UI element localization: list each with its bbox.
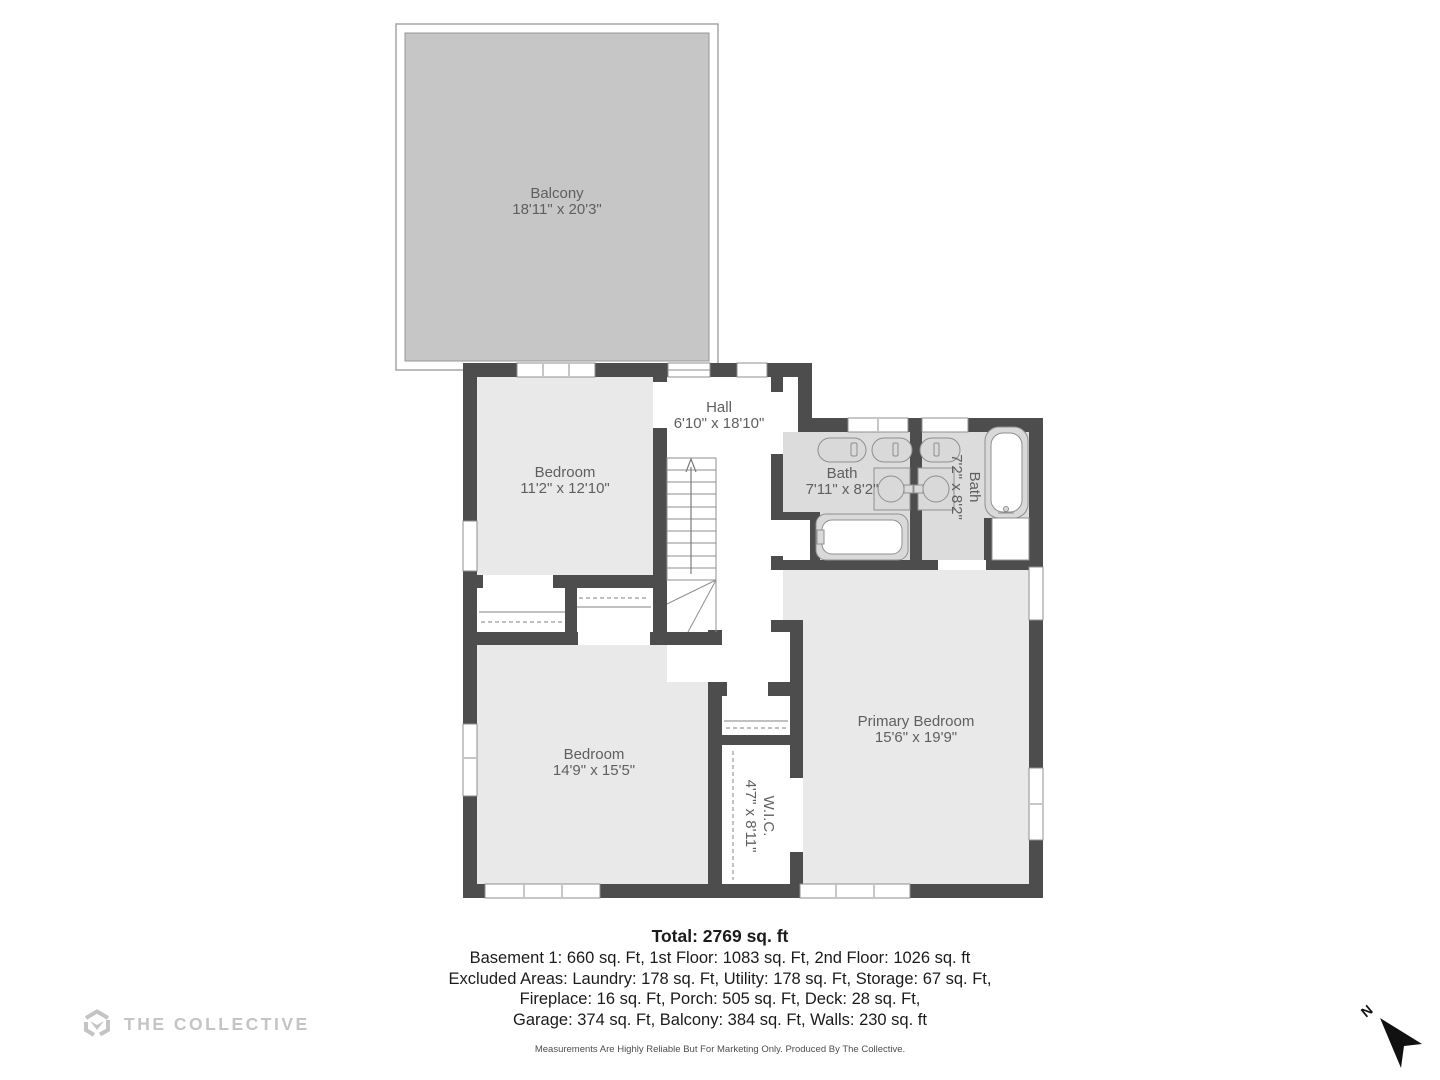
north-arrow: N — [1344, 992, 1430, 1074]
svg-text:15'6" x 19'9": 15'6" x 19'9" — [875, 729, 957, 746]
svg-text:18'11" x 20'3": 18'11" x 20'3" — [512, 201, 602, 218]
svg-text:7'11" x 8'2": 7'11" x 8'2" — [806, 481, 879, 498]
bathtub-icon — [816, 514, 908, 560]
area-line-fireplace: Fireplace: 16 sq. Ft, Porch: 505 sq. Ft,… — [0, 989, 1440, 1010]
svg-text:6'10" x 18'10": 6'10" x 18'10" — [674, 415, 765, 432]
room-label-balcony: Balcony — [530, 185, 584, 202]
shower-icon — [992, 518, 1029, 560]
room-label-bedroom2: Bedroom — [564, 746, 625, 763]
area-line-floors: Basement 1: 660 sq. Ft, 1st Floor: 1083 … — [0, 948, 1440, 969]
brand-name: THE COLLECTIVE — [124, 1014, 310, 1035]
north-label: N — [1358, 1002, 1376, 1021]
bathtub-icon — [985, 427, 1028, 518]
floorplan-drawing: Balcony 18'11" x 20'3" Bedroom 11'2" x 1… — [0, 0, 1440, 1080]
floorplan-page: Balcony 18'11" x 20'3" Bedroom 11'2" x 1… — [0, 0, 1440, 1080]
brand-logo: THE COLLECTIVE — [82, 1008, 310, 1040]
area-line-excluded: Excluded Areas: Laundry: 178 sq. Ft, Uti… — [0, 969, 1440, 990]
svg-text:Bath: Bath — [966, 472, 983, 503]
toilet-icon — [872, 438, 912, 462]
brand-mark-icon — [82, 1008, 112, 1040]
svg-text:11'2" x 12'10": 11'2" x 12'10" — [520, 480, 610, 497]
disclaimer-text: Measurements Are Highly Reliable But For… — [0, 1044, 1440, 1055]
room-label-bath1: Bath — [827, 465, 858, 482]
room-label-bedroom1: Bedroom — [535, 464, 596, 481]
room-label-primary-bedroom: Primary Bedroom — [858, 713, 975, 730]
total-area-text: Total: 2769 sq. ft — [0, 926, 1440, 947]
svg-text:7'2" x 8'2": 7'2" x 8'2" — [948, 454, 965, 520]
room-label-hall: Hall — [706, 399, 732, 416]
toilet-icon — [818, 438, 866, 462]
svg-text:4'7" x 8'11": 4'7" x 8'11" — [742, 780, 759, 853]
svg-text:W.I.C.: W.I.C. — [760, 796, 777, 837]
svg-text:14'9" x 15'5": 14'9" x 15'5" — [553, 762, 635, 779]
north-arrow-icon — [1380, 1018, 1422, 1068]
